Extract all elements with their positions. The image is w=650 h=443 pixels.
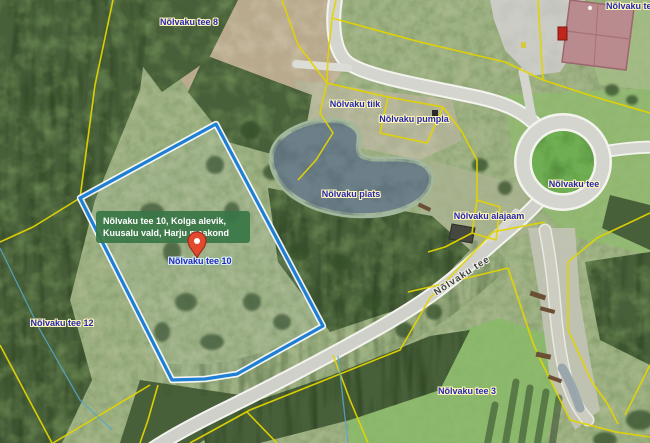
location-pin-icon (183, 229, 211, 259)
building-pumpla (432, 110, 438, 116)
roundabout-centre (532, 131, 594, 193)
map-canvas[interactable]: Nõlvaku tee 8 Nõlvaku te Nõlvaku tiik Nõ… (0, 0, 650, 443)
red-shed (558, 27, 567, 40)
address-tooltip: Nõlvaku tee 10, Kolga alevik, Kuusalu va… (96, 211, 250, 243)
